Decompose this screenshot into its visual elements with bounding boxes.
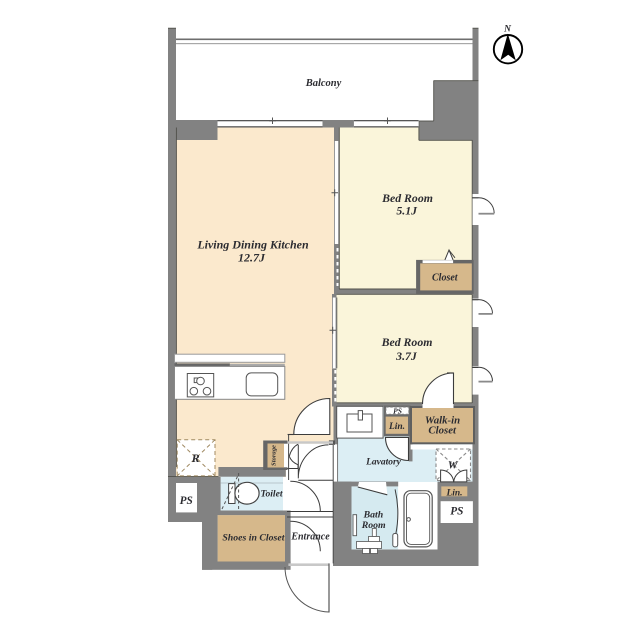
svg-text:PS: PS <box>180 495 193 507</box>
svg-text:N: N <box>503 25 512 35</box>
svg-text:5.1J: 5.1J <box>396 204 418 218</box>
svg-text:PS: PS <box>450 505 463 517</box>
svg-text:Room: Room <box>361 520 386 531</box>
svg-text:Bath: Bath <box>363 510 384 521</box>
svg-text:PS: PS <box>393 406 402 415</box>
svg-text:Closet: Closet <box>432 272 459 283</box>
svg-text:3.7J: 3.7J <box>395 349 418 363</box>
svg-text:Closet: Closet <box>428 425 457 437</box>
svg-text:Balcony: Balcony <box>305 78 342 89</box>
svg-text:Entrance: Entrance <box>290 532 330 543</box>
svg-text:R: R <box>191 451 200 465</box>
svg-text:Lin.: Lin. <box>388 422 405 432</box>
svg-text:Shoes in Closet: Shoes in Closet <box>222 533 284 544</box>
svg-text:Lavatory: Lavatory <box>365 457 402 467</box>
svg-text:Lin.: Lin. <box>445 488 462 498</box>
svg-text:Toilet: Toilet <box>260 489 282 500</box>
svg-text:Storage: Storage <box>271 445 278 466</box>
svg-text:W: W <box>448 460 459 472</box>
svg-text:12.7J: 12.7J <box>238 251 266 265</box>
svg-text:Bed Room: Bed Room <box>381 335 433 349</box>
